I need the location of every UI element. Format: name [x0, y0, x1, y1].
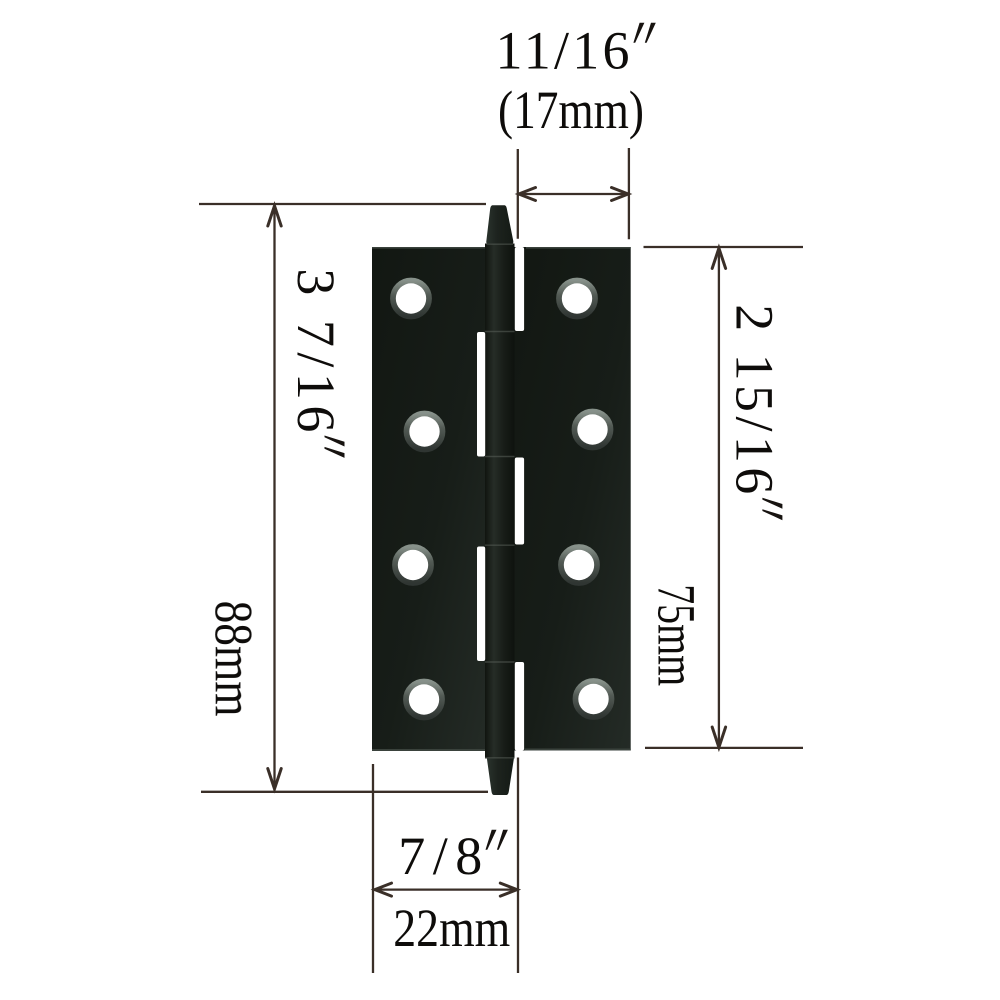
- svg-text:75mm: 75mm: [646, 584, 706, 686]
- svg-text:88mm: 88mm: [204, 601, 264, 717]
- svg-text:22mm: 22mm: [393, 898, 510, 958]
- svg-text:(17mm): (17mm): [498, 80, 644, 140]
- svg-text:7/8: 7/8: [398, 826, 482, 886]
- svg-text:11/16: 11/16: [496, 21, 630, 81]
